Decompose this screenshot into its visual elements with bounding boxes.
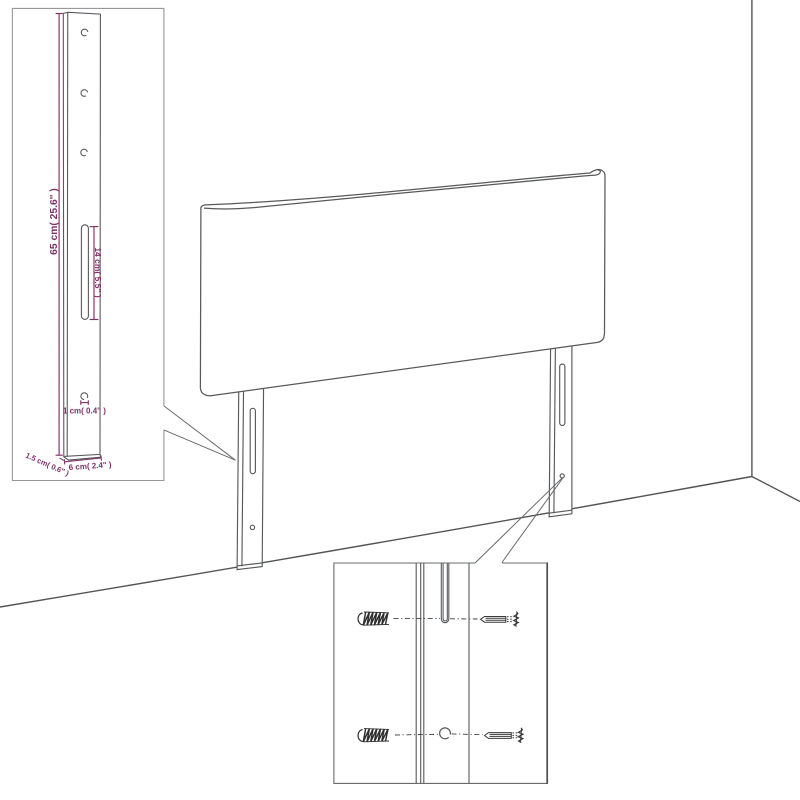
svg-text:65 cm( 25.6" ): 65 cm( 25.6" ) <box>49 188 60 255</box>
svg-text:1 cm( 0.4" ): 1 cm( 0.4" ) <box>63 406 106 415</box>
svg-text:14 cm( 5.5" ): 14 cm( 5.5" ) <box>93 247 103 298</box>
